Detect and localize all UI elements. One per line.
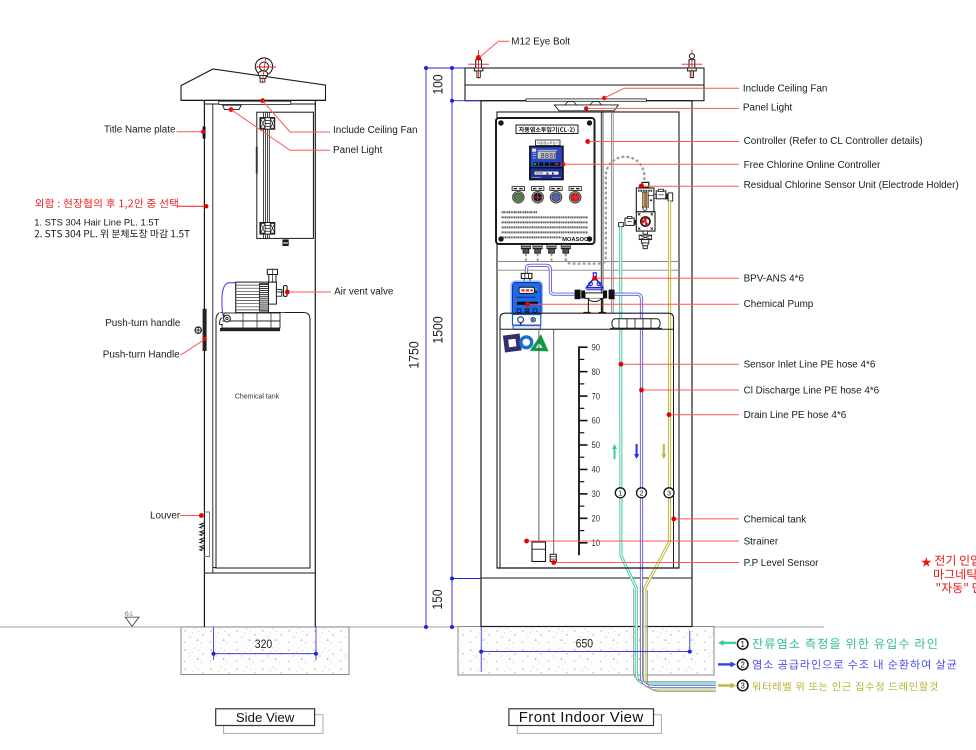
svg-text:60: 60 xyxy=(592,416,601,427)
svg-text:Include Ceiling Fan: Include Ceiling Fan xyxy=(333,125,418,136)
svg-text:50: 50 xyxy=(592,440,601,451)
svg-text:1: 1 xyxy=(618,489,622,498)
svg-text:3: 3 xyxy=(741,682,745,691)
svg-text:10: 10 xyxy=(592,538,601,549)
svg-text:Include Ceiling Fan: Include Ceiling Fan xyxy=(743,83,828,94)
svg-text:100: 100 xyxy=(430,74,446,94)
svg-text:Chemical Pump: Chemical Pump xyxy=(744,299,814,310)
svg-text:BPV-ANS 4*6: BPV-ANS 4*6 xyxy=(744,274,805,285)
svg-text:Push-turn handle: Push-turn handle xyxy=(105,318,181,329)
svg-text:Side View: Side View xyxy=(236,710,295,725)
svg-text:320: 320 xyxy=(255,639,273,651)
svg-text:30: 30 xyxy=(592,489,601,500)
svg-text:3: 3 xyxy=(667,489,671,498)
svg-text:M12 Eye Bolt: M12 Eye Bolt xyxy=(511,37,570,48)
svg-text:Push-turn Handle: Push-turn Handle xyxy=(103,349,180,360)
svg-text:2: 2 xyxy=(640,489,644,498)
svg-text:Title Name plate: Title Name plate xyxy=(104,125,176,136)
svg-text:Panel Light: Panel Light xyxy=(333,145,383,156)
svg-text:2: 2 xyxy=(741,661,745,670)
svg-text:80: 80 xyxy=(592,367,601,378)
svg-text:150: 150 xyxy=(429,589,445,609)
svg-text:1500: 1500 xyxy=(430,316,446,344)
svg-text:Strainer: Strainer xyxy=(744,537,779,548)
svg-text:1. STS 304 Hair Line PL. 1.5T: 1. STS 304 Hair Line PL. 1.5T xyxy=(34,216,159,227)
svg-text:P.P Level Sensor: P.P Level Sensor xyxy=(744,558,820,569)
svg-text:650: 650 xyxy=(576,639,594,651)
svg-text:Air vent valve: Air vent valve xyxy=(334,287,394,298)
svg-text:8: 8 xyxy=(553,153,557,161)
svg-text:MOASOO: MOASOO xyxy=(562,237,589,243)
svg-text:Chemical tank: Chemical tank xyxy=(235,393,280,400)
svg-text:20: 20 xyxy=(592,514,601,525)
svg-text:Panel Light: Panel Light xyxy=(743,102,793,113)
svg-text:1: 1 xyxy=(741,640,745,649)
svg-text:90: 90 xyxy=(592,342,601,353)
svg-text:Controller (Refer to CL Contro: Controller (Refer to CL Controller detai… xyxy=(744,136,923,147)
svg-text:Drain Line PE hose 4*6: Drain Line PE hose 4*6 xyxy=(744,410,847,421)
svg-text:Chemical tank: Chemical tank xyxy=(744,514,807,525)
svg-text:Residual Chlorine Sensor Unit: Residual Chlorine Sensor Unit (Electrode… xyxy=(744,180,959,191)
svg-text:1750: 1750 xyxy=(406,341,422,369)
svg-text:40: 40 xyxy=(592,465,601,476)
svg-text:Free Chlorine Online Controlle: Free Chlorine Online Controller xyxy=(744,160,881,171)
svg-text:Louver: Louver xyxy=(150,510,181,521)
svg-text:Sensor Inlet Line PE hose 4*6: Sensor Inlet Line PE hose 4*6 xyxy=(744,360,876,371)
svg-text:G.L: G.L xyxy=(125,612,134,618)
svg-text:Front Indoor View: Front Indoor View xyxy=(519,709,644,726)
svg-text:Cl Discharge Line PE hose 4*6: Cl Discharge Line PE hose 4*6 xyxy=(744,386,880,397)
svg-text:70: 70 xyxy=(592,391,601,402)
